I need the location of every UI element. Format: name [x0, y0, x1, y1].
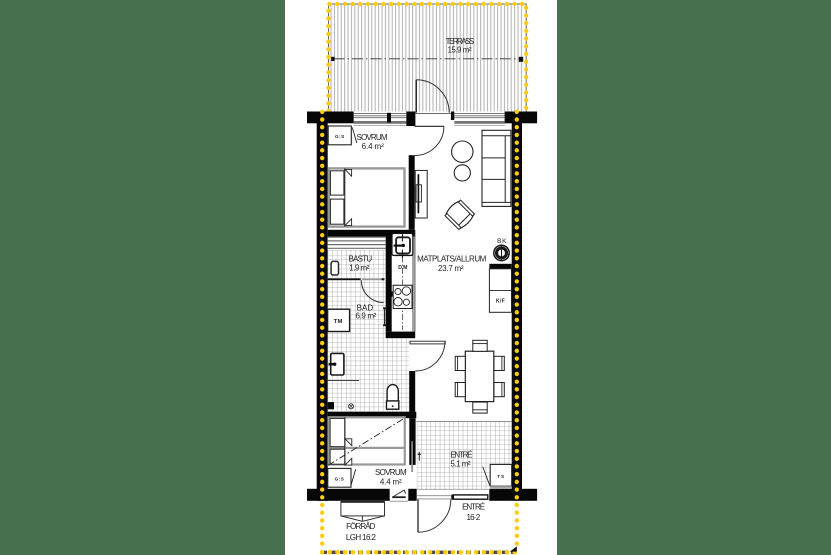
svg-text:BASTU: BASTU: [349, 254, 373, 263]
svg-text:6.9 m²: 6.9 m²: [356, 312, 377, 321]
svg-text:6.4 m²: 6.4 m²: [362, 142, 385, 151]
svg-text:16·2: 16·2: [466, 513, 480, 522]
svg-text:TS: TS: [497, 474, 504, 479]
svg-text:1.9 m²: 1.9 m²: [349, 264, 369, 273]
svg-text:ENTRÉ: ENTRÉ: [462, 503, 485, 512]
svg-text:15.9 m²: 15.9 m²: [448, 45, 472, 54]
svg-text:ENTRÉ: ENTRÉ: [450, 450, 472, 459]
svg-text:MATPLATS/ALLRUM: MATPLATS/ALLRUM: [417, 254, 487, 263]
svg-text:LGH 16:2: LGH 16:2: [346, 533, 377, 542]
svg-text:BK: BK: [497, 238, 507, 245]
svg-text:K/F: K/F: [496, 298, 505, 304]
svg-text:4.4 m²: 4.4 m²: [380, 478, 402, 487]
svg-text:FÖRRÅD: FÖRRÅD: [346, 522, 376, 531]
svg-text:DM: DM: [398, 265, 407, 271]
svg-text:23.7 m²: 23.7 m²: [438, 264, 464, 273]
svg-text:G:S: G:S: [335, 476, 344, 481]
svg-text:5.1 m²: 5.1 m²: [450, 459, 471, 468]
svg-text:SOVRUM: SOVRUM: [357, 133, 388, 142]
svg-text:G:S: G:S: [335, 134, 344, 139]
svg-text:TM: TM: [334, 319, 343, 325]
svg-text:SOVRUM: SOVRUM: [375, 468, 407, 477]
